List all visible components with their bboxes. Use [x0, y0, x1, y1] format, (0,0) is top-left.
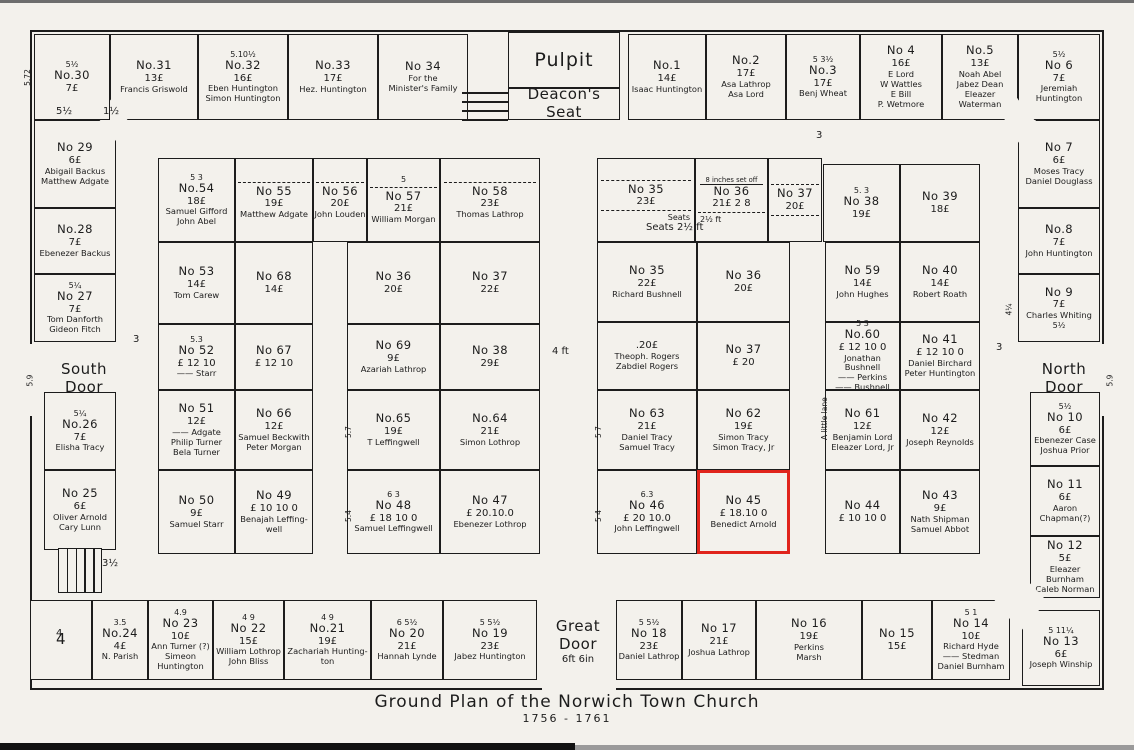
- pew-52[interactable]: 5.3No 52£ 12 10—— Starr: [158, 324, 235, 390]
- pew-21[interactable]: 4 9No.2119£Zachariah Hunting-ton: [284, 600, 371, 680]
- pew-34-name: Minister's Family: [379, 84, 467, 94]
- pew-5-no: No.5: [943, 44, 1017, 58]
- pew-56-dash: [316, 182, 365, 183]
- pew-53-name: Tom Carew: [159, 291, 234, 301]
- pew-36-top-dash: [698, 212, 765, 213]
- pew-12-no: No 12: [1031, 539, 1099, 553]
- pew-55-no: No 55: [236, 185, 312, 199]
- pew-4-name: P. Wetmore: [861, 100, 941, 110]
- pew-57-no: No 57: [368, 190, 439, 204]
- pew-37-top-dash: [771, 215, 820, 216]
- pew-31-no: No.31: [111, 59, 197, 73]
- pew-69-price: 9£: [348, 353, 439, 365]
- annotation-5½: 5½: [56, 106, 72, 117]
- scan-edge-top: [0, 0, 1134, 3]
- pew-68[interactable]: No 6814£: [235, 242, 313, 324]
- pew-15[interactable]: No 1515£: [862, 600, 932, 680]
- pew-6-name: Jeremiah Huntington: [1019, 84, 1099, 104]
- annotation-1½: 1½: [103, 106, 119, 117]
- pew-22[interactable]: 4 9No 2215£William LothropJohn Bliss: [213, 600, 284, 680]
- pulpit-xbig: Pulpit: [509, 49, 619, 71]
- stair-line: [67, 548, 69, 593]
- pew-40-price: 14£: [901, 278, 979, 290]
- stair-line: [84, 548, 86, 593]
- pew-22-no: No 22: [214, 622, 283, 636]
- great-door-big: Great: [540, 618, 616, 636]
- deacons-seat-big: Deacon's Seat: [509, 86, 619, 121]
- pew-8-no: No.8: [1019, 223, 1099, 237]
- pew-3[interactable]: 5 3½No.317£Benj Wheat: [786, 34, 860, 120]
- pew-6[interactable]: 5½No 67£Jeremiah Huntington5.72: [1018, 34, 1100, 120]
- pew-59[interactable]: No 5914£John Hughes: [825, 242, 900, 322]
- pew-47-name: Ebenezer Lothrop: [441, 520, 539, 530]
- pew-20-no: No 20: [372, 627, 442, 641]
- pew-67-no: No 67: [236, 344, 312, 358]
- pew-52-no: No 52: [159, 344, 234, 358]
- pew-rogers[interactable]: .20£Theoph. RogersZabdiel Rogers: [597, 322, 697, 390]
- pew-26-name: Elisha Tracy: [45, 443, 115, 453]
- pew-18-no: No 18: [617, 627, 681, 641]
- pew-16-price: 19£: [757, 631, 861, 643]
- pew-24-no: No.24: [93, 627, 147, 641]
- pew-47-no: No 47: [441, 494, 539, 508]
- pew-23-no: No 23: [149, 617, 212, 631]
- pew-31-price: 13£: [111, 73, 197, 85]
- pew-58-dash: [444, 182, 536, 183]
- pew-67[interactable]: No 67£ 12 10: [235, 324, 313, 390]
- pew-31[interactable]: No.3113£Francis Griswold: [110, 34, 198, 120]
- north-door-dim-vertical: 5.9: [1106, 374, 1115, 386]
- plan-title-text: Ground Plan of the Norwich Town Church: [0, 692, 1134, 712]
- pew-22-name: John Bliss: [214, 657, 283, 667]
- pew-12-name: Eleazer Burnham: [1031, 565, 1099, 585]
- pew-11[interactable]: No 116£Aaron Chapman(?): [1030, 466, 1100, 536]
- pew-45[interactable]: No 45£ 18.10 0Benedict Arnold: [697, 470, 790, 554]
- pew-13-no: No 13: [1023, 635, 1099, 649]
- pew-34[interactable]: No 34For theMinister's Family: [378, 34, 468, 120]
- pew-4-no: No 4: [861, 44, 941, 58]
- pew-8-price: 7£: [1019, 237, 1099, 249]
- seat-line: [462, 119, 508, 121]
- pew-55-name: Matthew Adgate: [236, 210, 312, 220]
- north-door-big: North: [1028, 361, 1100, 379]
- pew-7-price: 6£: [1019, 155, 1099, 167]
- pew-57-dim: 5: [368, 175, 439, 184]
- pew-65-name: T Leffingwell: [348, 438, 439, 448]
- pew-69-name: Azariah Lathrop: [348, 365, 439, 375]
- pew-57[interactable]: 5No 5721£William Morgan: [367, 158, 440, 242]
- pew-42-price: 12£: [901, 426, 979, 438]
- pew-12[interactable]: No 125£Eleazer BurnhamCaleb Norman5¼: [1030, 536, 1100, 598]
- pew-30-dim-vertical: 5.72: [23, 69, 32, 86]
- pew-51-price: 12£: [159, 416, 234, 428]
- pew-35-top-dash: [601, 210, 691, 211]
- pew-38-mid-left-price: 29£: [441, 358, 539, 370]
- pew-36-mid-price: 20£: [698, 283, 789, 295]
- pew-37-mid-left[interactable]: No 3722£: [440, 242, 540, 324]
- pew-60-price: £ 12 10 0: [826, 342, 899, 354]
- south-door-big: South: [40, 361, 128, 379]
- pew-37-mid-price: £ 20: [698, 357, 789, 369]
- pew-66[interactable]: No 6612£Samuel BeckwithPeter Morgan: [235, 390, 313, 470]
- pew-39-no: No 39: [901, 190, 979, 204]
- pew-39[interactable]: No 3918£: [900, 164, 980, 242]
- pew-49-name: well: [236, 525, 312, 535]
- pew-45-price: £ 18.10 0: [700, 508, 787, 520]
- pew-24-name: N. Parish: [93, 652, 147, 662]
- pew-14-name: Daniel Burnham: [933, 662, 1009, 672]
- pew-50-price: 9£: [159, 508, 234, 520]
- annotation-3: 3: [133, 334, 139, 345]
- pew-4[interactable]: No 416£E LordW WattlesE BillP. Wetmore: [860, 34, 942, 120]
- pew-37-top-no: No 37: [769, 187, 821, 201]
- pew-63-no: No 63: [598, 407, 696, 421]
- pew-39-price: 18£: [901, 204, 979, 216]
- annotation-a-little-lane: A little lane: [820, 397, 829, 440]
- pew-14-no: No 14: [933, 617, 1009, 631]
- pew-59-price: 14£: [826, 278, 899, 290]
- pew-33-no: No.33: [289, 59, 377, 73]
- pew-50-name: Samuel Starr: [159, 520, 234, 530]
- pew-41-price: £ 12 10 0: [901, 347, 979, 359]
- pew-63-price: 21£: [598, 421, 696, 433]
- pew-47-price: £ 20.10.0: [441, 508, 539, 520]
- pew-9-no: No 9: [1019, 286, 1099, 300]
- pew-1[interactable]: No.114£Isaac Huntington: [628, 34, 706, 120]
- pew-25[interactable]: No 256£Oliver ArnoldCary Lunn: [44, 470, 116, 550]
- pew-54[interactable]: 5 3No.5418£Samuel GiffordJohn Abel: [158, 158, 235, 242]
- pew-62[interactable]: No 6219£Simon TracySimon Tracy, Jr: [697, 390, 790, 470]
- pew-28-price: 7£: [35, 237, 115, 249]
- pew-27-no: No 27: [35, 290, 115, 304]
- pew-35-mid-name: Richard Bushnell: [598, 290, 696, 300]
- pew-55[interactable]: No 5519£Matthew Adgate: [235, 158, 313, 242]
- stairs-box: [58, 548, 102, 593]
- pew-40-name: Robert Roath: [901, 290, 979, 300]
- pew-42-name: Joseph Reynolds: [901, 438, 979, 448]
- pew-33[interactable]: No.3317£Hez. Huntington: [288, 34, 378, 120]
- pew-62-no: No 62: [698, 407, 789, 421]
- pew-55-dash: [238, 182, 309, 183]
- pew-35-mid[interactable]: No 3522£Richard Bushnell: [597, 242, 697, 322]
- pew-37-mid-left-price: 22£: [441, 284, 539, 296]
- pew-4-price: 16£: [861, 58, 941, 70]
- pew-1-price: 14£: [629, 73, 705, 85]
- pew-37-mid-no: No 37: [698, 343, 789, 357]
- pew-58[interactable]: No 5823£Thomas Lathrop: [440, 158, 540, 242]
- annotation-seats-2½-ft: Seats 2½ ft: [646, 222, 703, 233]
- pew-41-no: No 41: [901, 333, 979, 347]
- pew-11-price: 6£: [1031, 492, 1099, 504]
- pew-11-no: No 11: [1031, 478, 1099, 492]
- pew-61[interactable]: No 6112£Benjamin LordEleazer Lord, Jr: [825, 390, 900, 470]
- pew-2[interactable]: No.217£Asa LathropAsa Lord: [706, 34, 786, 120]
- pew-36-mid-left[interactable]: No 3620£: [347, 242, 440, 324]
- pew-13-name: Joseph Winship: [1023, 660, 1099, 670]
- pew-35-top-subr: Seats: [598, 213, 694, 222]
- pew-68-no: No 68: [236, 270, 312, 284]
- pew-44[interactable]: No 44£ 10 10 0: [825, 470, 900, 554]
- pew-66-name: Peter Morgan: [236, 443, 312, 453]
- pew-43-price: 9£: [901, 503, 979, 515]
- pew-30-no: No.30: [35, 69, 109, 83]
- great-door: GreatDoor6ft 6in: [540, 606, 616, 678]
- pew-18-name: Daniel Lathrop: [617, 652, 681, 662]
- pew-28-no: No.28: [35, 223, 115, 237]
- pew-25-price: 6£: [45, 501, 115, 513]
- stair-line: [76, 548, 78, 593]
- pew-41[interactable]: No 41£ 12 10 0Daniel BirchardPeter Hunti…: [900, 322, 980, 390]
- pew-20[interactable]: 6 5½No 2021£Hannah Lynde: [371, 600, 443, 680]
- pew-17-name: Joshua Lathrop: [683, 648, 755, 658]
- pew-37-top-dash: [771, 184, 820, 185]
- pulpit: Pulpit: [508, 32, 620, 88]
- pew-8[interactable]: No.87£John Huntington: [1018, 208, 1100, 274]
- pew-10[interactable]: 5½No 106£Ebenezer CaseJoshua Prior: [1030, 392, 1100, 466]
- pew-36-top-sub: 2½ ft: [696, 215, 767, 224]
- pew-47[interactable]: No 47£ 20.10.0Ebenezer Lothrop: [440, 470, 540, 554]
- pew-66-price: 12£: [236, 421, 312, 433]
- pew-6-no: No 6: [1019, 59, 1099, 73]
- pew-52-name: —— Starr: [159, 369, 234, 379]
- pew-29-name: Matthew Adgate: [35, 177, 115, 187]
- pew-48[interactable]: 6 3No 48£ 18 10 0Samuel Leffingwell: [347, 470, 440, 554]
- scan-edge-bottom-right: [575, 745, 1134, 750]
- pew-35-top-price: 23£: [598, 196, 694, 208]
- ground-plan: 5½No.307£5.72No.3113£Francis Griswold5.1…: [0, 0, 1134, 750]
- pew-67-price: £ 12 10: [236, 358, 312, 370]
- pew-59-no: No 59: [826, 264, 899, 278]
- pew-65[interactable]: No.6519£T Leffingwell: [347, 390, 440, 470]
- pew-32-name: Simon Huntington: [199, 94, 287, 104]
- pew-18[interactable]: 5 5½No 1823£Daniel Lathrop: [616, 600, 682, 680]
- annotation-5-4: 5 4: [594, 510, 603, 522]
- pew-44-no: No 44: [826, 499, 899, 513]
- pew-53-no: No 53: [159, 265, 234, 279]
- pew-37-top-price: 20£: [769, 201, 821, 213]
- pew-36-mid-no: No 36: [698, 269, 789, 283]
- pew-46-name: John Leffingwell: [598, 524, 696, 534]
- pew-50[interactable]: No 509£Samuel Starr: [158, 470, 235, 554]
- pew-36-top-no: No 36: [696, 185, 767, 199]
- pew-46-no: No 46: [598, 499, 696, 513]
- pew-36-top-price: 21£ 2 8: [696, 198, 767, 210]
- pew-61-price: 12£: [826, 421, 899, 433]
- pew-63[interactable]: No 6321£Daniel TracySamuel Tracy: [597, 390, 697, 470]
- pew-64-name: Simon Lothrop: [441, 438, 539, 448]
- annotation-5.4: 5.4: [344, 510, 353, 522]
- pew-24[interactable]: 3.5No.244£N. Parish: [92, 600, 148, 680]
- deacons-seat: Deacon's Seat: [508, 88, 620, 120]
- pew-9-dim-vertical: 4¼: [1005, 303, 1014, 315]
- pew-15-no: No 15: [863, 627, 931, 641]
- pew-51-no: No 51: [159, 402, 234, 416]
- pew-61-no: No 61: [826, 407, 899, 421]
- pew-40[interactable]: No 4014£Robert Roath: [900, 242, 980, 322]
- stair-line: [93, 548, 95, 593]
- pew-46[interactable]: 6.3No 46£ 20 10.0John Leffingwell: [597, 470, 697, 554]
- pew-21-name: ton: [285, 657, 370, 667]
- pew-10-name: Joshua Prior: [1031, 446, 1099, 456]
- pew-9-name: Charles Whiting: [1019, 311, 1099, 321]
- pew-38-top-no: No 38: [824, 195, 899, 209]
- pew-50-no: No 50: [159, 494, 234, 508]
- annotation-4-ft: 4 ft: [552, 346, 569, 357]
- pew-49-price: £ 10 10 0: [236, 503, 312, 515]
- pew-7-name: Daniel Douglass: [1019, 177, 1099, 187]
- pew-23-name: Simeon Huntington: [149, 652, 212, 672]
- pew-38-mid-left-no: No 38: [441, 344, 539, 358]
- pew-36-mid-left-no: No 36: [348, 270, 439, 284]
- pew-69-no: No 69: [348, 339, 439, 353]
- pew-37-top[interactable]: No 3720£: [768, 158, 822, 242]
- pew-38-top[interactable]: 5. 3No 3819£: [823, 164, 900, 242]
- pew-48-name: Samuel Leffingwell: [348, 524, 439, 534]
- pew-65-no: No.65: [348, 412, 439, 426]
- pew-49[interactable]: No 49£ 10 10 0Benajah Leffing-well: [235, 470, 313, 554]
- pew-69[interactable]: No 699£Azariah Lathrop: [347, 324, 440, 390]
- pew-32-no: No.32: [199, 59, 287, 73]
- pew-38-mid-left[interactable]: No 3829£: [440, 324, 540, 390]
- plan-title: Ground Plan of the Norwich Town Church 1…: [0, 692, 1134, 725]
- pew-43-name: Samuel Abbot: [901, 525, 979, 535]
- pew-10-no: No 10: [1031, 411, 1099, 425]
- pew-8-name: John Huntington: [1019, 249, 1099, 259]
- pew-19[interactable]: 5 5½No 1923£Jabez Huntington: [443, 600, 537, 680]
- pew-20-name: Hannah Lynde: [372, 652, 442, 662]
- seat-line: [462, 92, 508, 94]
- pew-40-no: No 40: [901, 264, 979, 278]
- annotation-5-7: 5 7: [594, 426, 603, 438]
- pew-27-name: Gideon Fitch: [35, 325, 115, 335]
- pew-37-mid-left-no: No 37: [441, 270, 539, 284]
- pew-25-no: No 25: [45, 487, 115, 501]
- pew-53[interactable]: No 5314£Tom Carew: [158, 242, 235, 324]
- pew-3-name: Benj Wheat: [787, 89, 859, 99]
- pew-68-price: 14£: [236, 284, 312, 296]
- pew-63-name: Samuel Tracy: [598, 443, 696, 453]
- pew-33-price: 17£: [289, 73, 377, 85]
- pew-60-name: Jonathan Bushnell: [826, 354, 899, 374]
- pew-5-name: Eleazer Waterman: [943, 90, 1017, 110]
- seat-line: [462, 110, 508, 112]
- pew-1-name: Isaac Huntington: [629, 85, 705, 95]
- pew-60-no: No.60: [826, 328, 899, 342]
- pew-42-no: No 42: [901, 412, 979, 426]
- pew-29-no: No 29: [35, 141, 115, 155]
- pew-54-no: No.54: [159, 182, 234, 196]
- pew-3-no: No.3: [787, 64, 859, 78]
- pew-21-no: No.21: [285, 622, 370, 636]
- pew-64-price: 21£: [441, 426, 539, 438]
- pew-17-price: 21£: [683, 636, 755, 648]
- pew-54-name: John Abel: [159, 217, 234, 227]
- pew-28-name: Ebenezer Backus: [35, 249, 115, 259]
- pew-11-name: Aaron Chapman(?): [1031, 504, 1099, 524]
- pew-19-name: Jabez Huntington: [444, 652, 536, 662]
- scan-edge-bottom-left: [0, 743, 575, 750]
- pew-56-name: John Louden: [314, 210, 366, 220]
- pew-23[interactable]: 4.9No 2310£Ann Turner (?)Simeon Huntingt…: [148, 600, 213, 680]
- pew-38-top-price: 19£: [824, 209, 899, 221]
- annotation-3: 3: [816, 130, 822, 141]
- pew-15-price: 15£: [863, 641, 931, 653]
- pew-62-price: 19£: [698, 421, 789, 433]
- pew-26[interactable]: 5¼No.267£Elisha Tracy: [44, 392, 116, 470]
- pew-33-name: Hez. Huntington: [289, 85, 377, 95]
- pew-41-name: Peter Huntington: [901, 369, 979, 379]
- pew-5-price: 13£: [943, 58, 1017, 70]
- pew-45-name: Benedict Arnold: [700, 520, 787, 530]
- pew-37-mid[interactable]: No 37£ 20: [697, 322, 790, 390]
- pew-62-name: Simon Tracy, Jr: [698, 443, 789, 453]
- pew-29[interactable]: No 296£Abigail BackusMatthew Adgate: [34, 120, 116, 208]
- pew-2-price: 17£: [707, 68, 785, 80]
- pew-29-price: 6£: [35, 155, 115, 167]
- pew-36-top[interactable]: 8 inches set offNo 3621£ 2 82½ ft: [695, 158, 768, 242]
- annotation-5.7: 5.7: [344, 426, 353, 438]
- pew-53-price: 14£: [159, 279, 234, 291]
- pew-5[interactable]: No.513£Noah AbelJabez DeanEleazer Waterm…: [942, 34, 1018, 120]
- pew-42[interactable]: No 4212£Joseph Reynolds: [900, 390, 980, 470]
- pew-17[interactable]: No 1721£Joshua Lathrop: [682, 600, 756, 680]
- pew-51[interactable]: No 5112£—— AdgatePhilip TurnerBela Turne…: [158, 390, 235, 470]
- south-door-dim-vertical: 5.9: [25, 374, 34, 386]
- pew-57-name: William Morgan: [368, 215, 439, 225]
- pew-28[interactable]: No.287£Ebenezer Backus: [34, 208, 116, 274]
- seat-line: [462, 101, 508, 103]
- pew-43[interactable]: No 439£Nath ShipmanSamuel Abbot: [900, 470, 980, 554]
- pew-58-name: Thomas Lathrop: [441, 210, 539, 220]
- pew-65-price: 19£: [348, 426, 439, 438]
- pew-13[interactable]: 5 11¼No 136£Joseph Winship5.7½: [1022, 610, 1100, 686]
- pew-16[interactable]: No 1619£PerkinsMarsh: [756, 600, 862, 680]
- pew-64-no: No.64: [441, 412, 539, 426]
- pew-57-dash: [370, 187, 437, 188]
- pew-7[interactable]: No 76£Moses TracyDaniel Douglass: [1018, 120, 1100, 208]
- pew-9[interactable]: No 97£Charles Whiting5½4¼: [1018, 274, 1100, 342]
- pew-25-name: Cary Lunn: [45, 523, 115, 533]
- pew-61-name: Eleazer Lord, Jr: [826, 443, 899, 453]
- pew-35-mid-no: No 35: [598, 264, 696, 278]
- pew-32[interactable]: 5.10½No.3216£Eben HuntingtonSimon Huntin…: [198, 34, 288, 120]
- pew-56-no: No 56: [314, 185, 366, 199]
- plan-title-dates: 1756 - 1761: [0, 712, 1134, 725]
- pew-14[interactable]: 5 1No 1410£Richard Hyde—— StedmanDaniel …: [932, 600, 1010, 680]
- pew-44-price: £ 10 10 0: [826, 513, 899, 525]
- great-door-big: Door: [540, 636, 616, 654]
- annotation-3½: 3½: [102, 558, 118, 569]
- annotation-4: 4: [56, 628, 62, 639]
- pew-17-no: No 17: [683, 622, 755, 636]
- pew-43-no: No 43: [901, 489, 979, 503]
- pew-1-no: No.1: [629, 59, 705, 73]
- pew-58-no: No 58: [441, 185, 539, 199]
- pew-16-name: Marsh: [757, 653, 861, 663]
- great-door-price: 6ft 6in: [540, 654, 616, 666]
- pew-35-top-no: No 35: [598, 183, 694, 197]
- pew-12-name: Caleb Norman: [1031, 585, 1099, 595]
- pew-66-no: No 66: [236, 407, 312, 421]
- pew-27[interactable]: 5¼No 277£Tom DanforthGideon Fitch: [34, 274, 116, 342]
- corner-4: 4: [30, 600, 92, 680]
- pew-60[interactable]: 5 3No.60£ 12 10 0Jonathan Bushnell—— Per…: [825, 322, 900, 390]
- pew-64[interactable]: No.6421£Simon Lothrop: [440, 390, 540, 470]
- annotation-3: 3: [996, 342, 1002, 353]
- pew-56[interactable]: No 5620£John Louden: [313, 158, 367, 242]
- pew-36-mid-left-price: 20£: [348, 284, 439, 296]
- pew-36-mid[interactable]: No 3620£: [697, 242, 790, 322]
